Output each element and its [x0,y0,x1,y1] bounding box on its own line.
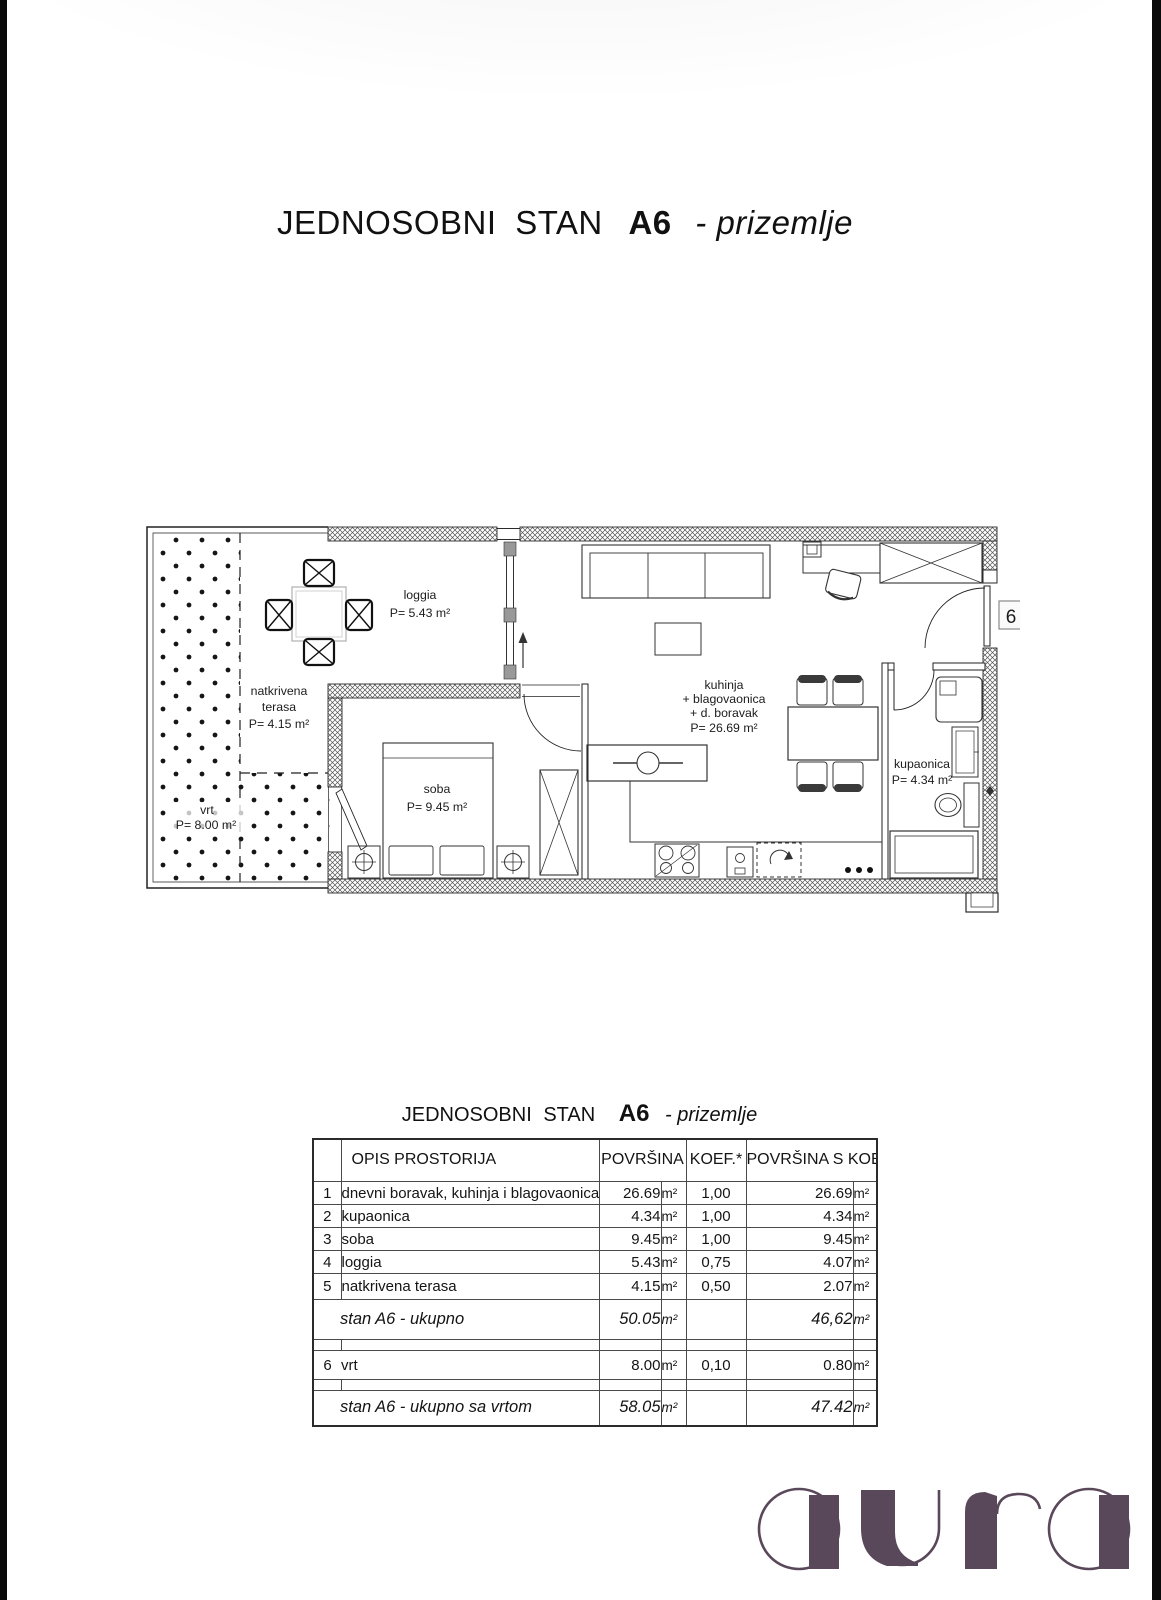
direction-arrow-icon [519,632,528,668]
wall-right-upper [983,541,997,570]
row-unit: m² [661,1300,686,1340]
row-unit: m² [661,1351,686,1380]
row-unit: m² [661,1274,686,1300]
row-koef: 1,00 [686,1205,746,1228]
area-table-section: JEDNOSOBNI STAN A6 - prizemlje OPIS PROS… [312,1100,877,1427]
row-opis: vrt [341,1351,599,1380]
row-num: 2 [313,1205,341,1228]
table-title: JEDNOSOBNI STAN A6 - prizemlje [312,1100,847,1128]
desk [803,545,880,573]
logo-letter-a2 [1049,1489,1129,1569]
logo-letter-a1 [759,1489,839,1569]
row-unit: m² [661,1251,686,1274]
total-label: stan A6 - ukupno sa vrtom [313,1391,599,1426]
table-row: 2 kupaonica 4.34 m² 1,00 4.34 m² [313,1205,877,1228]
room-label-loggia: loggia P= 5.43 m² [390,588,451,620]
svg-text:+ d. boravak: + d. boravak [690,706,759,720]
terrace-door-leaf [336,789,367,850]
row-unit: m² [853,1300,877,1340]
row-povrsina-s: 0.80 [746,1351,853,1380]
loggia-glass-wall [504,542,516,679]
row-povrsina: 5.43 [599,1251,661,1274]
table-title-floor: - prizemlje [665,1104,757,1126]
row-povrsina-s: 26.69 [746,1182,853,1205]
subtotal-label: stan A6 - ukupno [313,1300,599,1340]
room-label-soba: soba P= 9.45 m² [407,782,468,814]
row-povrsina: 8.00 [599,1351,661,1380]
row-opis: natkrivena terasa [341,1274,599,1300]
svg-text:P= 5.43 m²: P= 5.43 m² [390,606,451,620]
coffee-table [655,623,701,655]
table-row: 4 loggia 5.43 m² 0,75 4.07 m² [313,1251,877,1274]
room-label-vrt: vrt P= 8.00 m² [172,802,244,834]
logo-letter-r [965,1492,1040,1569]
header-num [313,1139,341,1182]
unit-number-badge: 6 [999,601,1020,629]
wall-bathroom-top-a [888,663,894,670]
svg-text:natkrivena: natkrivena [251,684,308,698]
wall-soba-left-lower [328,852,342,879]
row-unit: m² [661,1205,686,1228]
row-koef: 1,00 [686,1228,746,1251]
logo-letter-u [861,1490,939,1566]
subtotal-koef-empty [686,1300,746,1340]
entry-door-frame [983,570,997,583]
wall-soba-top [328,684,520,698]
row-opis: loggia [341,1251,599,1274]
table-row: 3 soba 9.45 m² 1,00 9.45 m² [313,1228,877,1251]
page-edge-right [1152,0,1161,1600]
wall-bathroom-top-b [933,663,985,670]
svg-text:+ blagovaonica: + blagovaonica [682,692,765,706]
page-title-unit: A6 [628,204,671,241]
room-label-kupaonica: kupaonica P= 4.34 m² [892,757,953,787]
entry-door-leaf [984,586,990,646]
floor-plan: 6 loggia P= 5.43 m² natkrivena terasa P=… [140,500,1020,920]
table-header-row: OPIS PROSTORIJA POVRŠINA KOEF.* POVRŠINA… [313,1139,877,1182]
table-row: 5 natkrivena terasa 4.15 m² 0,50 2.07 m² [313,1274,877,1300]
row-unit: m² [853,1391,877,1426]
row-opis: soba [341,1228,599,1251]
row-koef: 0,50 [686,1274,746,1300]
row-num: 1 [313,1182,341,1205]
room-label-terasa: natkrivena terasa P= 4.15 m² [249,684,310,731]
table-title-text: JEDNOSOBNI STAN [402,1104,595,1126]
row-koef: 1,00 [686,1182,746,1205]
spacer-row [313,1380,877,1391]
svg-text:P= 4.34 m²: P= 4.34 m² [892,773,953,787]
page-title-text: JEDNOSOBNI STAN [277,204,603,241]
wall-bathroom-left [882,663,888,879]
svg-text:loggia: loggia [404,588,437,602]
toilet [935,794,961,817]
subtotal-povrsina: 50.05 [599,1300,661,1340]
row-povrsina-s: 2.07 [746,1274,853,1300]
row-unit: m² [853,1251,877,1274]
total-koef-empty [686,1391,746,1426]
svg-text:kuhinja: kuhinja [705,678,744,692]
washing-machine [936,677,982,722]
row-povrsina: 4.15 [599,1274,661,1300]
subtotal-povrsina-s: 46,62 [746,1300,853,1340]
unit-number: 6 [1006,607,1017,628]
area-table: OPIS PROSTORIJA POVRŠINA KOEF.* POVRŠINA… [312,1138,878,1427]
pillow [440,846,484,875]
wall-top-left [328,527,497,541]
desk-chair [824,569,862,603]
row-povrsina-s: 4.34 [746,1205,853,1228]
header-povrsina-s-koef: POVRŠINA S KOEF. [746,1139,877,1182]
row-opis: kupaonica [341,1205,599,1228]
tv-unit [803,542,821,557]
row-num: 3 [313,1228,341,1251]
row-unit: m² [853,1274,877,1300]
dishwasher [757,843,801,877]
terrace-furniture [266,560,372,665]
svg-text:terasa: terasa [262,700,296,714]
vrt-row: 6 vrt 8.00 m² 0,10 0.80 m² [313,1351,877,1380]
row-povrsina-s: 9.45 [746,1228,853,1251]
counter-dots [845,867,873,873]
svg-text:P= 9.45 m²: P= 9.45 m² [407,800,468,814]
living-room-furniture [582,542,982,655]
svg-text:P= 8.00 m²: P= 8.00 m² [176,818,237,832]
svg-text:vrt: vrt [200,803,214,817]
total-povrsina: 58.05 [599,1391,661,1426]
toilet-tank [964,783,979,827]
subtotal-row: stan A6 - ukupno 50.05 m² 46,62 m² [313,1300,877,1340]
row-unit: m² [853,1205,877,1228]
page-title-floor: - prizemlje [695,204,853,241]
row-unit: m² [853,1228,877,1251]
header-opis: OPIS PROSTORIJA [341,1139,599,1182]
total-row: stan A6 - ukupno sa vrtom 58.05 m² 47.42… [313,1391,877,1426]
wall-right-lower [983,648,997,893]
dining-table [788,707,878,760]
row-koef: 0,75 [686,1251,746,1274]
svg-text:soba: soba [424,782,451,796]
dining-set [788,675,878,792]
bathtub [890,831,978,878]
soba-door-swing [524,694,581,751]
row-num: 6 [313,1351,341,1380]
aura-logo: aura [752,1482,1147,1582]
row-unit: m² [661,1182,686,1205]
pillow [389,846,433,875]
total-povrsina-s: 47.42 [746,1391,853,1426]
wall-soba-left-upper [328,698,342,787]
row-povrsina: 26.69 [599,1182,661,1205]
entry-door-swing [925,588,985,648]
page-title: JEDNOSOBNI STAN A6 - prizemlje [0,204,1130,242]
row-opis: dnevni boravak, kuhinja i blagovaonica [341,1182,599,1205]
row-povrsina: 4.34 [599,1205,661,1228]
header-povrsina: POVRŠINA [599,1139,686,1182]
wall-bottom [328,879,997,893]
row-unit: m² [853,1351,877,1380]
wall-top-right [520,527,997,541]
row-koef: 0,10 [686,1351,746,1380]
svg-text:P= 26.69 m²: P= 26.69 m² [690,721,757,735]
svg-text:P= 4.15 m²: P= 4.15 m² [249,717,310,731]
row-num: 5 [313,1274,341,1300]
svg-text:kupaonica: kupaonica [894,757,950,771]
island-sink [637,752,659,774]
row-num: 4 [313,1251,341,1274]
spacer-row [313,1340,877,1351]
row-povrsina: 9.45 [599,1228,661,1251]
table-row: 1 dnevni boravak, kuhinja i blagovaonica… [313,1182,877,1205]
bathroom-door-swing [894,670,934,710]
row-unit: m² [661,1391,686,1426]
row-povrsina-s: 4.07 [746,1251,853,1274]
room-label-kuhinja: kuhinja + blagovaonica + d. boravak P= 2… [682,678,765,735]
row-unit: m² [661,1228,686,1251]
table-title-unit: A6 [619,1100,650,1127]
kitchen-sink [727,847,753,877]
row-unit: m² [853,1182,877,1205]
header-koef: KOEF.* [686,1139,746,1182]
